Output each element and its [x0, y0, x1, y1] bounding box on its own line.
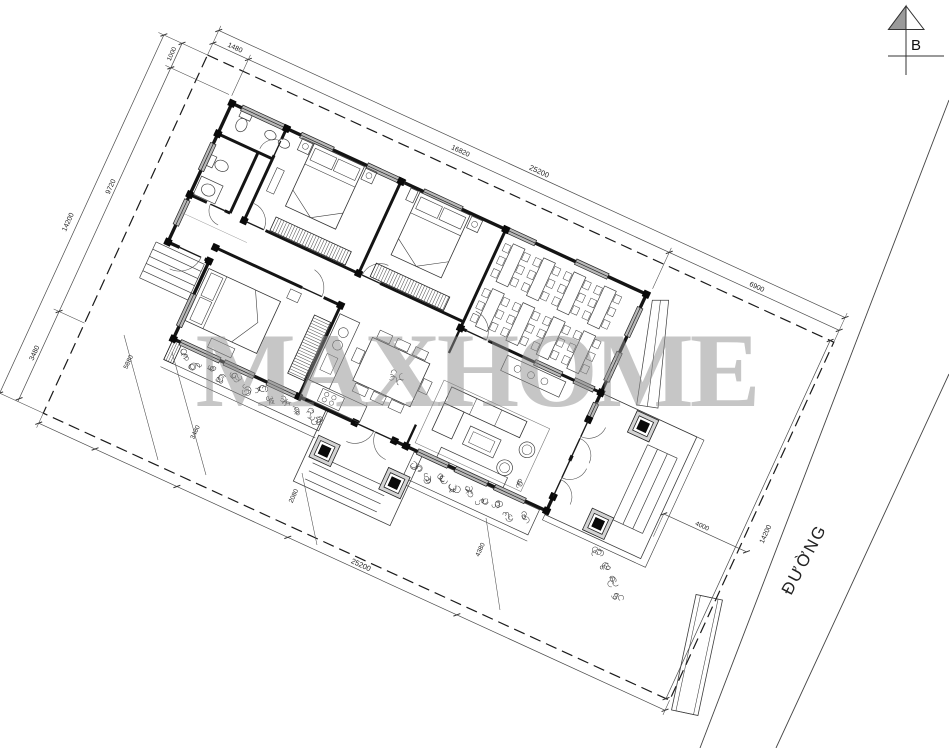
- svg-text:MAXHOME: MAXHOME: [196, 312, 757, 429]
- svg-text:B: B: [911, 37, 921, 54]
